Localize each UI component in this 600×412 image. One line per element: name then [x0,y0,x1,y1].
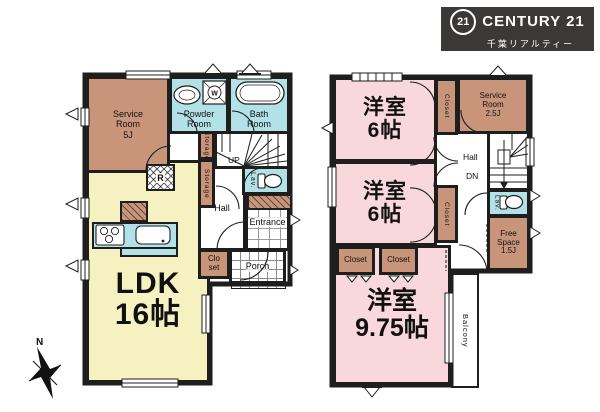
closet-1f-label: Clo set [208,255,220,273]
stairs-1f-label: UP [228,155,240,165]
century21-badge-icon: 21 [450,9,476,35]
room-powder-label: Powder Room [184,109,215,129]
century21-badge-number: 21 [457,16,469,28]
storage-upper: Storage [198,131,215,160]
compass-icon: N [29,337,61,399]
kitchen-counter-return [120,247,178,257]
room-bedroom2: 洋室 6帖 [333,161,437,246]
room-service-2f-label: Service Room 2.5J [480,92,507,119]
closet-2f-left-label: Closet [344,256,367,265]
room-bedroom3-label: 洋室 9.75帖 [355,288,429,342]
shoe-cabinet-icon [247,194,292,210]
porch-label: Porch [246,261,270,271]
closet-2f-top-label: Closet [443,94,450,118]
room-service-1f-label: Service Room 5J [113,109,143,139]
refrigerator-icon: R [146,164,175,191]
closet-1f: Clo set [198,249,230,279]
porch: Porch [229,249,286,284]
storage-lower: Storage [198,159,215,208]
room-bath-label: Bath Room [247,109,271,129]
room-service-1f: Service Room 5J [86,76,170,173]
room-ldk: LDK 16帖 [86,160,210,383]
logo-subtitle: 千葉リアルティー [487,37,574,50]
balcony-label: Balcony [461,314,469,348]
compass-north-label: N [36,337,43,348]
free-space-label: Free Space 1.5J [497,230,520,257]
room-ldk-label: LDK 16帖 [115,268,181,331]
lav-1f-label: Lav. [248,172,256,189]
stairs-2f [487,131,530,191]
stairs-2f-label: DN [466,171,478,181]
room-bedroom1: 洋室 6帖 [333,77,437,162]
balcony: Balcony [451,273,479,388]
refrigerator-label: R [156,173,165,183]
century21-logo: 21 CENTURY 21 千葉リアルティー [441,7,594,51]
free-space: Free Space 1.5J [487,215,530,271]
floorplan-canvas: LDK 16帖 Service Room 5J Powder Room Bath… [0,0,600,412]
room-bedroom2-label: 洋室 6帖 [363,181,407,226]
room-powder: Powder Room [169,76,229,134]
kitchen-counter [92,222,178,249]
lav-2f-label: Lav. [493,195,500,211]
closet-2f-top: Closet [435,78,458,135]
porch-step [231,284,286,289]
closet-2f-center: Closet [379,246,418,275]
closet-2f-mid-label: Closet [443,202,450,226]
storage-upper-label: Storage [203,131,210,161]
lav-1f: Lav. [242,166,290,195]
entrance-label: Entrance [249,217,285,227]
room-bath: Bath Room [228,76,290,134]
stairs-1f [214,131,290,169]
hall-2f-label: Hall [463,152,478,162]
closet-2f-left: Closet [336,246,375,275]
closet-2f-center-label: Closet [387,256,410,265]
room-bedroom1-label: 洋室 6帖 [363,97,407,142]
closet-2f-mid: Closet [435,185,458,243]
room-service-2f: Service Room 2.5J [457,77,529,134]
logo-brand-text: CENTURY 21 [482,13,585,30]
cupboard-icon [120,201,148,222]
lav-2f: Lav. [487,189,530,217]
storage-lower-label: Storage [203,169,210,199]
hall-1f-label: Hall [214,203,230,213]
